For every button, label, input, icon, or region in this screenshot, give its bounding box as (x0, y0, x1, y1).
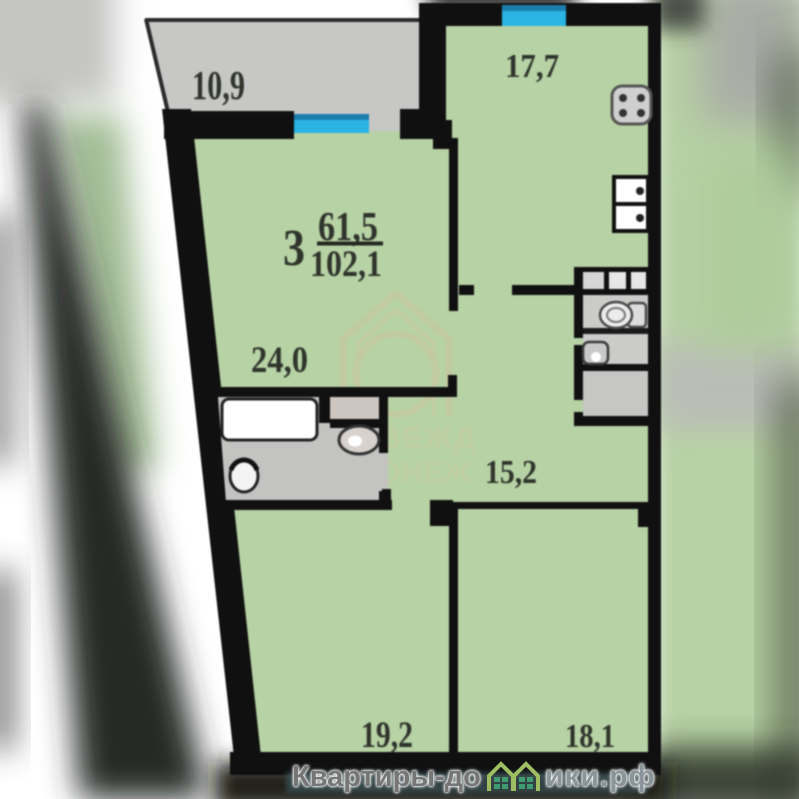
svg-text:15,2: 15,2 (485, 454, 537, 491)
svg-text:10,9: 10,9 (192, 62, 245, 108)
svg-text:18,1: 18,1 (565, 718, 615, 755)
svg-text:17,7: 17,7 (505, 48, 559, 85)
svg-text:ВЕЖД: ВЕЖД (379, 422, 477, 455)
svg-text:102,1: 102,1 (310, 244, 382, 285)
svg-text:3: 3 (283, 220, 305, 277)
svg-text:19,2: 19,2 (361, 715, 413, 756)
svg-text:24,0: 24,0 (251, 340, 308, 381)
